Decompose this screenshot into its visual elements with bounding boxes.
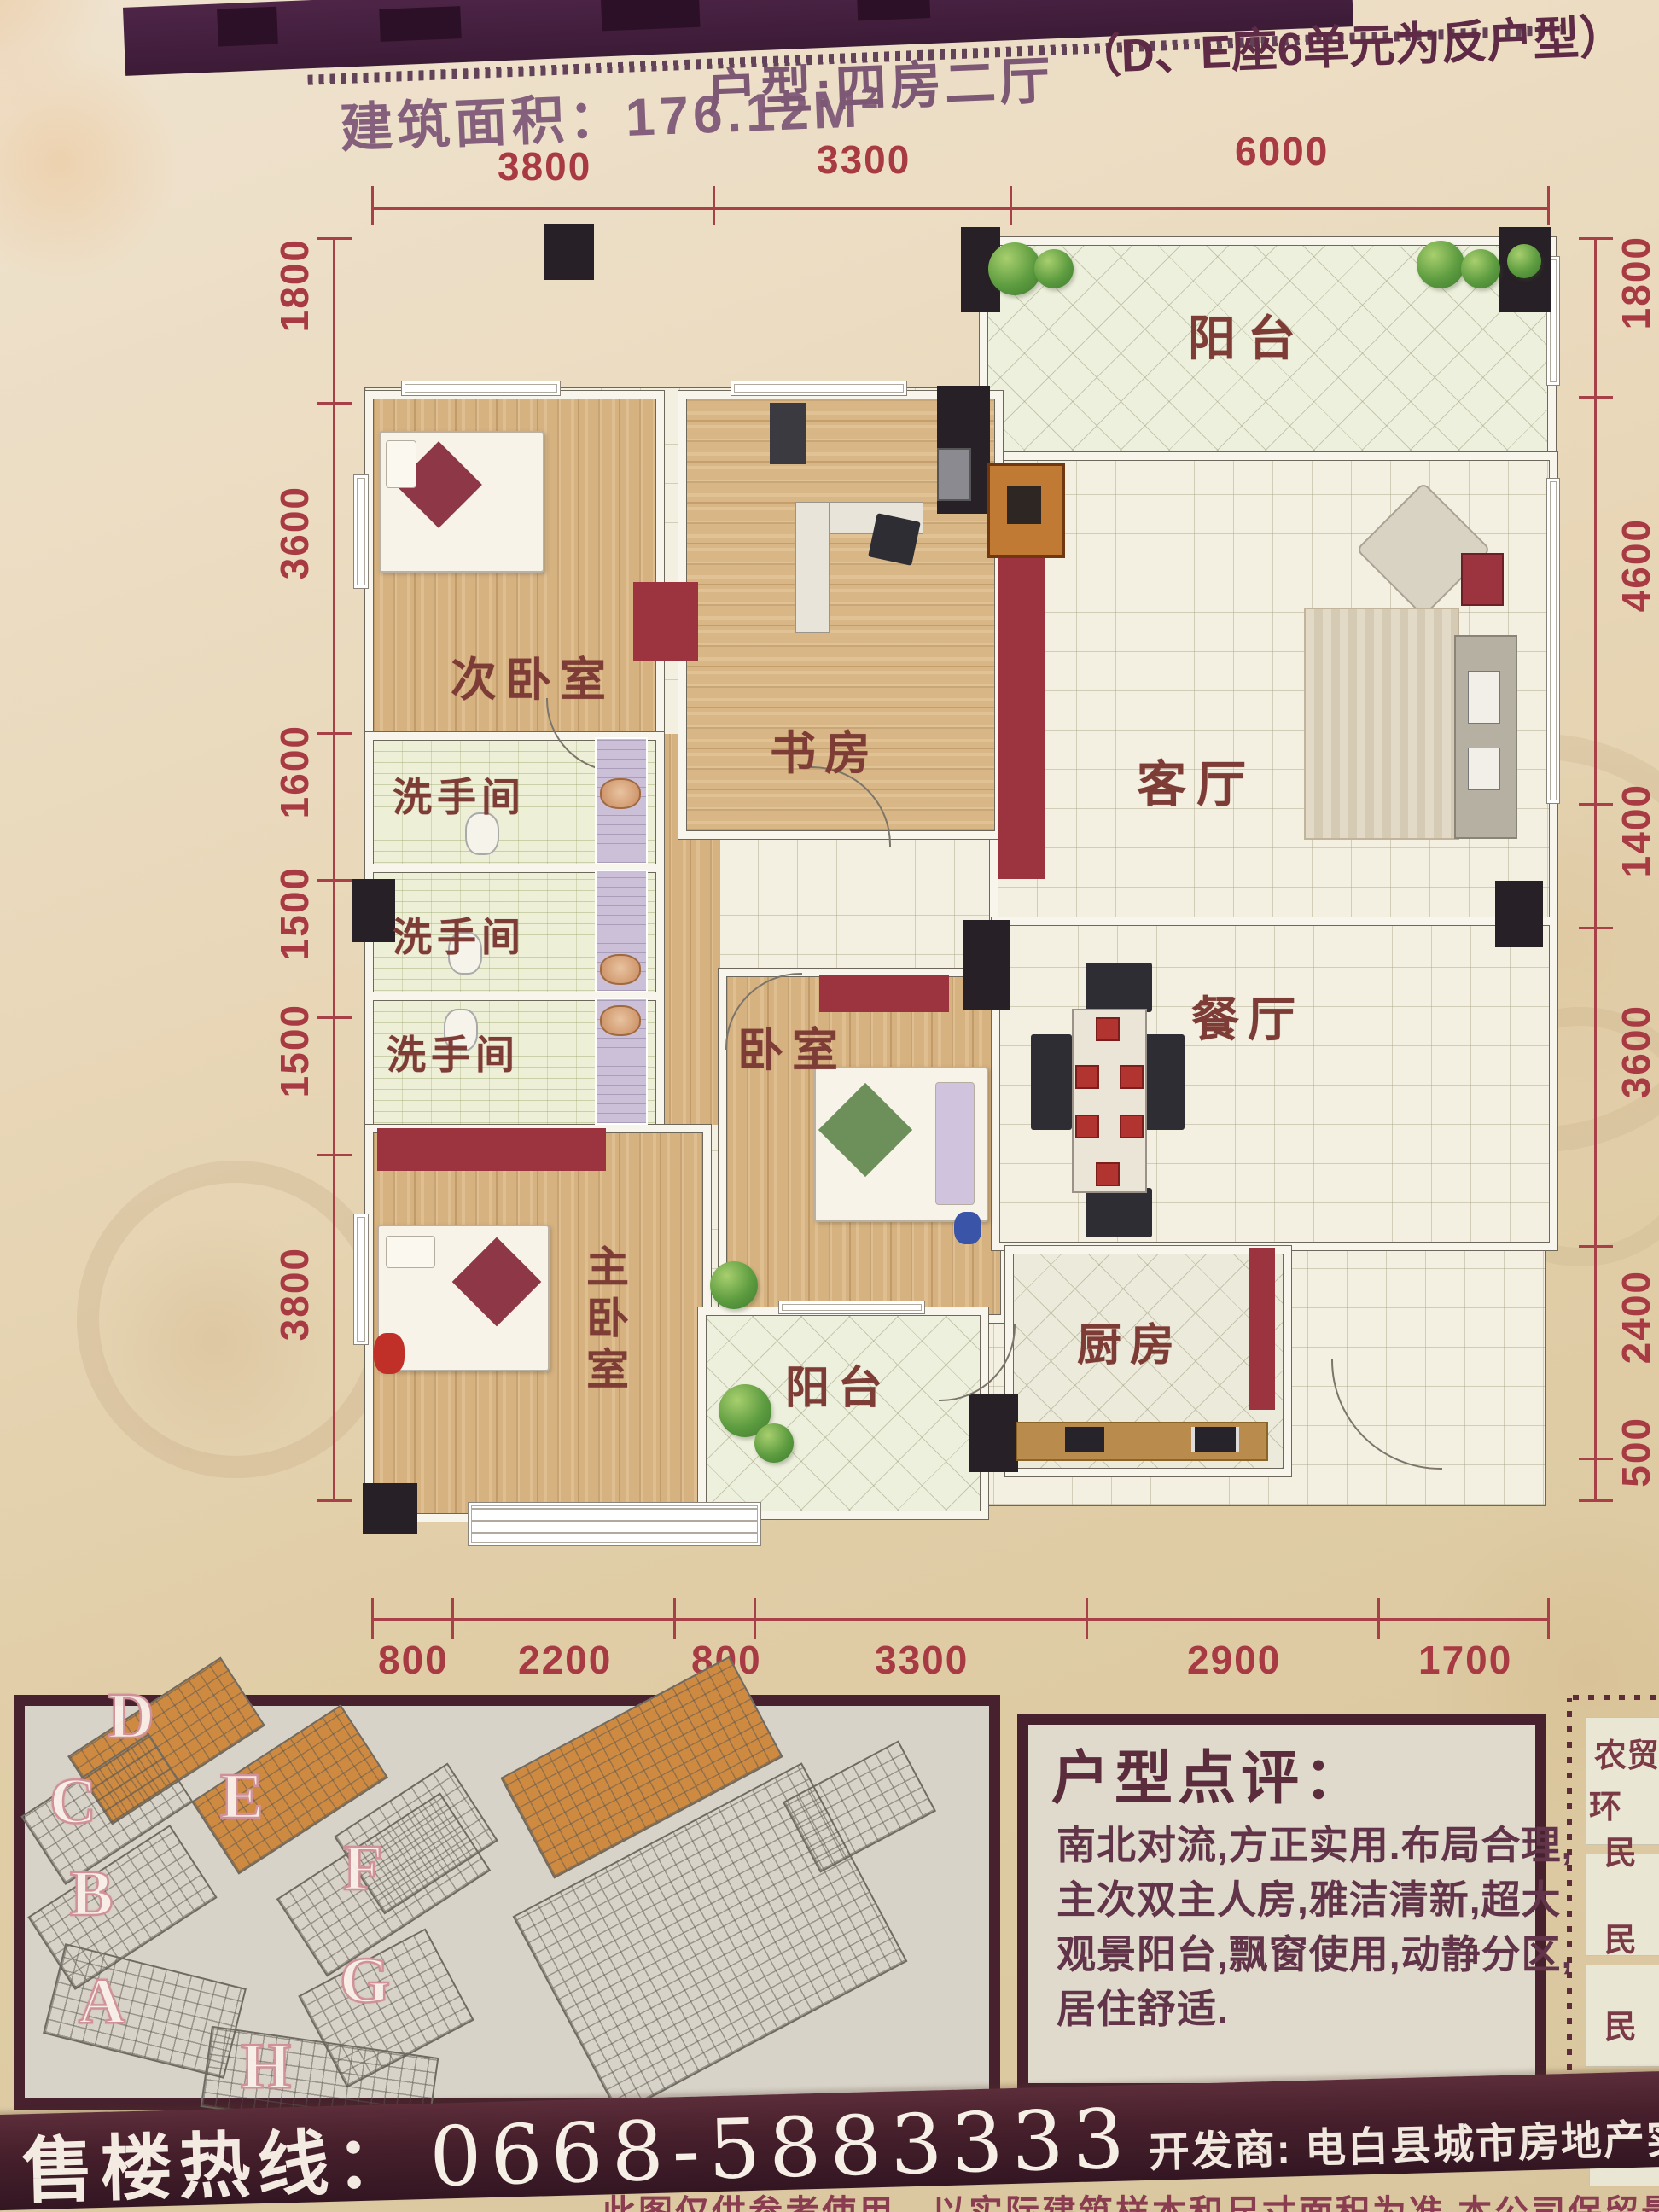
strip-text: 环: [1589, 1780, 1621, 1827]
strip-text: 民: [1604, 1826, 1637, 1873]
room-label-study: 书房: [770, 715, 879, 783]
dim-tick: [317, 732, 352, 735]
room-label-living: 客厅: [1137, 744, 1256, 816]
dim-tick: [317, 237, 352, 240]
dim-bottom-4: 3300: [875, 1637, 969, 1683]
dim-tick: [713, 186, 715, 225]
dim-tick: [317, 1499, 352, 1502]
dim-tick: [1547, 186, 1550, 225]
dim-tick: [1579, 396, 1613, 399]
pillow: [386, 440, 416, 488]
dim-top-1: 3800: [498, 143, 591, 189]
dim-bottom-6: 1700: [1418, 1637, 1512, 1683]
tv-screen: [1468, 671, 1500, 724]
wardrobe: [377, 1128, 606, 1171]
dim-line-right: [1594, 237, 1597, 1502]
rug: [1304, 608, 1459, 840]
wall-column: [363, 1483, 417, 1534]
dim-tick: [1579, 1458, 1613, 1460]
dim-left-4: 1500: [271, 866, 317, 960]
dim-tick: [1579, 1499, 1613, 1502]
window: [1546, 478, 1560, 804]
dining-chair: [1144, 1034, 1185, 1130]
dim-tick: [1086, 1598, 1088, 1639]
sink: [600, 1005, 641, 1036]
dim-tick: [754, 1598, 756, 1639]
dining-chair: [1086, 1188, 1152, 1237]
room-label-master: 主卧室: [573, 1244, 635, 1398]
place-setting: [1075, 1065, 1099, 1089]
pillow: [935, 1082, 975, 1205]
accent-strip: [819, 975, 949, 1012]
wall-column: [969, 1394, 1018, 1472]
window: [353, 474, 369, 589]
desk-chair: [868, 513, 921, 566]
sink: [600, 954, 641, 985]
dim-right-1: 1800: [1613, 236, 1659, 329]
monitor: [937, 448, 971, 501]
dining-chair: [1086, 963, 1152, 1012]
dashed-divider: [1573, 1695, 1659, 1700]
dim-bottom-1: 800: [378, 1637, 449, 1683]
plant: [754, 1423, 794, 1463]
plant: [1417, 241, 1464, 288]
cooktop: [1065, 1427, 1104, 1452]
wall-column: [352, 879, 395, 942]
plant: [1034, 249, 1074, 288]
fireplace-cabinet: [987, 463, 1065, 558]
dining-chair: [1031, 1034, 1072, 1130]
bay-window: [468, 1502, 761, 1546]
sink: [600, 778, 641, 809]
speaker: [1468, 748, 1500, 790]
developer-label: 开发商: 电白县城市房地产实业有限公司: [1148, 2099, 1659, 2179]
dim-right-6: 500: [1613, 1417, 1659, 1487]
dim-tick: [1579, 1245, 1613, 1248]
dim-tick: [1579, 803, 1613, 806]
pillow: [386, 1236, 435, 1268]
dim-tick: [1579, 927, 1613, 929]
dim-tick: [317, 879, 352, 882]
window: [778, 1301, 925, 1314]
place-setting: [1075, 1115, 1099, 1138]
plant: [710, 1261, 758, 1309]
place-setting: [1120, 1115, 1144, 1138]
room-label-wash3: 洗手间: [387, 1024, 520, 1080]
dim-tick: [317, 1016, 352, 1019]
coffee-table: [1461, 553, 1504, 606]
dim-tick: [673, 1598, 676, 1639]
unit-type-label: 户型:四房二厅: [704, 39, 1055, 127]
stove: [1191, 1427, 1239, 1452]
room-label-dining: 餐厅: [1191, 981, 1304, 1051]
hotline-label: 售楼热线：: [20, 2104, 416, 2212]
building-letter-G: G: [340, 1944, 390, 2018]
place-setting: [1096, 1162, 1120, 1186]
plant: [988, 242, 1041, 295]
dim-top-3: 6000: [1235, 128, 1329, 174]
dim-tick: [1377, 1598, 1380, 1639]
dim-right-3: 1400: [1613, 783, 1659, 877]
room-label-balcony-bottom: 阳台: [785, 1352, 891, 1416]
dim-bottom-2: 2200: [518, 1637, 612, 1683]
dim-line-left: [333, 237, 335, 1502]
room-label-bedroom: 卧室: [737, 1012, 847, 1080]
tv-cabinet: [1454, 635, 1517, 839]
wall-column: [963, 920, 1010, 1010]
unit-type-note: （D、E座6单元为反户型）: [1074, 0, 1627, 87]
cabinet: [770, 403, 806, 464]
building-letter-H: H: [241, 2029, 291, 2104]
place-setting: [1120, 1065, 1144, 1089]
wall-column: [1495, 881, 1543, 947]
building-letter-A: A: [79, 1965, 125, 2039]
desk: [795, 502, 829, 633]
slippers: [374, 1333, 405, 1374]
dim-left-2: 3600: [271, 486, 317, 579]
toy: [954, 1212, 981, 1244]
dim-tick: [317, 1154, 352, 1156]
dim-left-1: 1800: [271, 238, 317, 332]
review-title: 户型点评：: [1051, 1731, 1367, 1815]
dim-bottom-5: 2900: [1187, 1637, 1281, 1683]
plant: [1461, 249, 1500, 288]
disclaimer-text: 此图仅供参考使用，以实际建筑样本和尺寸面积为准 本公司保留最终解释权: [602, 2185, 1659, 2212]
building-letter-F: F: [343, 1831, 382, 1906]
building-letter-D: D: [108, 1679, 154, 1754]
room-label-wash1: 洗手间: [393, 766, 526, 823]
flyer-photo: 建筑面积：176.12M2 户型:四房二厅 （D、E座6单元为反户型） 3800…: [0, 0, 1659, 2212]
dim-tick: [317, 402, 352, 405]
dim-line-top: [371, 207, 1549, 210]
room-label-kitchen: 厨房: [1077, 1309, 1183, 1373]
dim-tick: [1579, 237, 1613, 240]
strip-text: 民: [1604, 1913, 1637, 1960]
accent-wall: [633, 582, 698, 661]
review-line: 南北对流,方正实用.布局合理,: [1057, 1814, 1573, 1871]
dim-tick: [371, 186, 374, 225]
review-line: 观景阳台,飘窗使用,动静分区,: [1057, 1924, 1573, 1980]
dim-left-6: 3800: [271, 1247, 317, 1341]
window: [731, 381, 907, 396]
window: [401, 381, 561, 396]
dim-tick: [1547, 1598, 1550, 1639]
accent-strip: [1249, 1248, 1275, 1410]
window: [353, 1214, 369, 1345]
strip-text: 民: [1604, 2000, 1637, 2047]
dim-top-2: 3300: [817, 137, 911, 183]
strip-text: 农贸: [1594, 1729, 1659, 1776]
review-line: 居住舒适.: [1057, 1978, 1229, 2034]
dim-left-3: 1600: [271, 725, 317, 818]
dim-tick: [1010, 186, 1012, 225]
dim-line-bottom: [371, 1618, 1549, 1621]
room-label-bedroom2: 次卧室: [451, 642, 614, 709]
room-label-balcony-top: 阳台: [1188, 300, 1307, 370]
cabinet-inset: [1007, 486, 1041, 524]
building-letter-B: B: [70, 1857, 114, 1931]
dim-right-5: 2400: [1613, 1270, 1659, 1364]
dim-tick: [371, 1598, 374, 1639]
dim-right-2: 4600: [1613, 518, 1659, 612]
dim-left-5: 1500: [271, 1004, 317, 1097]
dim-tick: [451, 1598, 454, 1639]
place-setting: [1096, 1017, 1120, 1041]
wall-column: [544, 224, 594, 280]
building-letter-C: C: [49, 1765, 96, 1839]
review-line: 主次双主人房,雅洁清新,超大: [1057, 1869, 1562, 1925]
plant: [1507, 244, 1541, 278]
decor-ring: [77, 1161, 394, 1478]
building-letter-E: E: [220, 1760, 264, 1834]
dashed-divider: [1567, 1698, 1572, 2101]
room-label-wash2: 洗手间: [393, 906, 526, 963]
dim-right-4: 3600: [1613, 1004, 1659, 1098]
